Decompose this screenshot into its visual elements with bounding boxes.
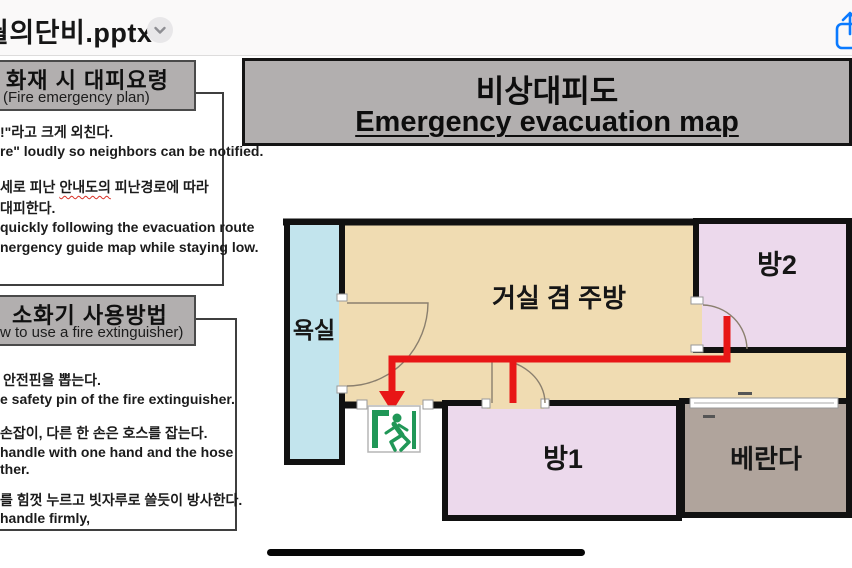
text-fragment: 피난경로에 따라 (111, 179, 209, 195)
app-screen: 월의단비.pptx 화재 시 대피요령 (Fire emergency plan… (0, 0, 852, 568)
door-mark (703, 415, 715, 418)
door-jamb (482, 399, 490, 408)
label-room1: 방1 (543, 444, 583, 474)
section1-line: 세로 피난 안내도의 피난경로에 따라 (0, 177, 209, 197)
door-jamb (691, 297, 703, 304)
label-living-kitchen: 거실 겸 주방 (492, 283, 626, 313)
spellcheck-marked-word: 안내도의 (59, 179, 111, 195)
share-button[interactable] (833, 8, 852, 52)
section2-line: ther. (0, 461, 30, 477)
floor-plan: 욕실 거실 겸 주방 방2 방1 베란다 (283, 213, 852, 522)
door-mark (738, 392, 752, 395)
section1-line: re" loudly so neighbors can be notified. (0, 143, 263, 159)
slide-title-korean: 비상대피도 (245, 66, 849, 111)
section2-title-en: w to use a fire extinguisher) (0, 324, 183, 341)
room2-door-gap (693, 303, 702, 347)
label-bathroom: 욕실 (293, 317, 335, 343)
chevron-down-icon (152, 22, 168, 38)
door-jamb (423, 400, 433, 409)
home-indicator[interactable] (267, 549, 585, 556)
file-menu-button[interactable] (147, 17, 173, 43)
door-jamb (691, 345, 703, 352)
running-man-exit-icon (368, 406, 420, 452)
slide-title-english: Emergency evacuation map (245, 106, 849, 139)
section2-line: 안전핀을 뽑는다. (3, 370, 101, 390)
section2-line: handle firmly, (0, 510, 90, 526)
section1-line: !"라고 크게 외친다. (0, 122, 113, 142)
text-fragment: 세로 피난 (0, 179, 59, 195)
door-jamb (337, 294, 347, 301)
share-icon (833, 8, 852, 52)
slide-title-box: 비상대피도 Emergency evacuation map (242, 58, 852, 146)
section2-line: 손잡이, 다른 한 손은 호스를 잡는다. (0, 423, 208, 443)
section1-line: 대피한다. (0, 198, 55, 218)
label-veranda: 베란다 (730, 444, 802, 474)
section2-line: handle with one hand and the hose (0, 444, 233, 460)
door-jamb (357, 400, 367, 409)
file-title[interactable]: 월의단비.pptx (0, 11, 152, 50)
titlebar: 월의단비.pptx (0, 0, 852, 56)
section1-line: quickly following the evacuation route (0, 219, 254, 235)
section1-line: nergency guide map while staying low. (0, 239, 259, 255)
door-jamb (337, 386, 347, 393)
bathroom-door-gap (339, 300, 347, 387)
section1-title-en: (Fire emergency plan) (3, 89, 150, 106)
section2-line: e safety pin of the fire extinguisher. (0, 391, 235, 407)
section2-line: 를 힘껏 누르고 빗자루로 쓸듯이 방사한다. (0, 490, 242, 510)
room-2 (696, 221, 849, 350)
label-room2: 방2 (757, 250, 797, 280)
